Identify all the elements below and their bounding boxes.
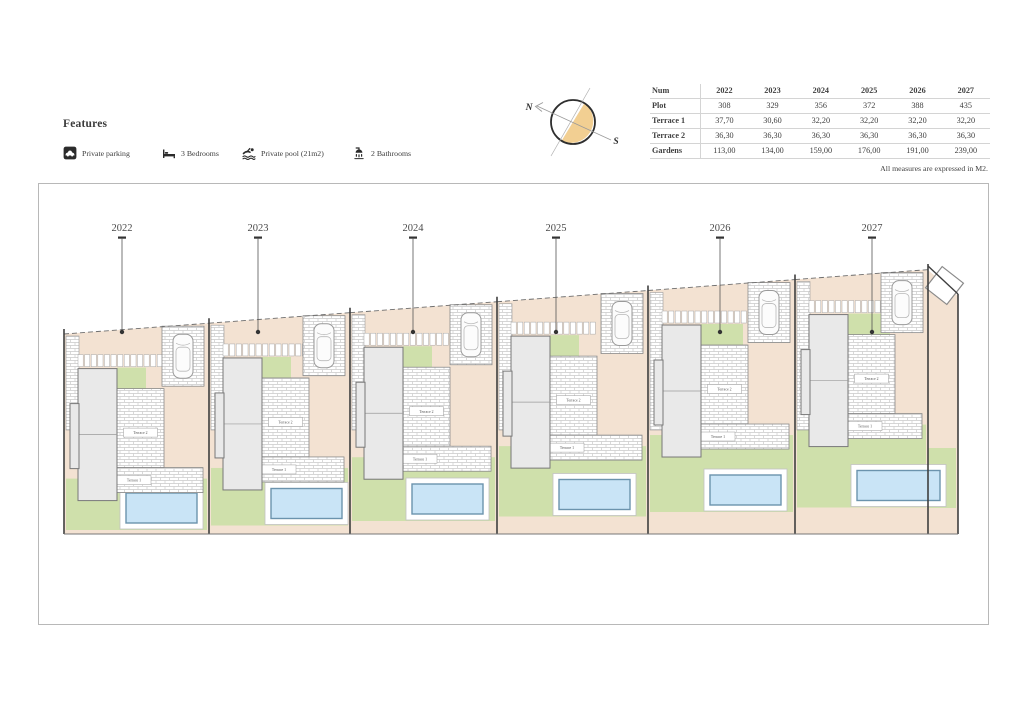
compass-south-label: S	[613, 137, 618, 147]
car-icon	[759, 291, 779, 335]
paver	[417, 333, 422, 345]
building-wing	[801, 350, 810, 415]
table-cell: 36,30	[845, 129, 893, 144]
paver	[564, 322, 569, 334]
terrace-label: Terrace 2	[717, 388, 731, 392]
terrace-label: Terrace 2	[133, 431, 147, 435]
paver	[430, 333, 435, 345]
paver	[728, 311, 733, 323]
pool	[559, 480, 630, 510]
table-row-label: Gardens	[650, 144, 700, 159]
leader-dot	[718, 330, 722, 334]
table-header-cell: Num	[650, 84, 700, 99]
paver	[584, 322, 589, 334]
paver	[384, 333, 389, 345]
paver	[423, 333, 428, 345]
table-row: Terrace 236,3036,3036,3036,3036,3036,30	[650, 129, 990, 144]
paver	[518, 322, 523, 334]
table-cell: 159,00	[797, 144, 845, 159]
paver	[875, 301, 880, 313]
paver	[397, 333, 402, 345]
paver	[855, 301, 860, 313]
paver	[118, 355, 123, 367]
plot-2024: Terrace 2Terrace 12024	[350, 223, 497, 534]
building-wing	[215, 393, 224, 458]
table-header-cell: 2024	[797, 84, 845, 99]
paver	[282, 344, 287, 356]
paver	[124, 355, 129, 367]
paver	[364, 333, 369, 345]
table-header-cell: 2025	[845, 84, 893, 99]
paver	[263, 344, 268, 356]
paver	[544, 322, 549, 334]
paver	[524, 322, 529, 334]
paver	[404, 333, 409, 345]
plot-number-label: 2022	[112, 223, 133, 234]
paver	[443, 333, 448, 345]
paver	[682, 311, 687, 323]
paver	[822, 301, 827, 313]
paver	[715, 311, 720, 323]
table-row-label: Terrace 2	[650, 129, 700, 144]
measures-table: Num202220232024202520262027 Plot30832935…	[650, 84, 990, 159]
paver	[849, 301, 854, 313]
compass: N S	[525, 88, 619, 156]
pool	[412, 484, 483, 514]
table-cell: 356	[797, 99, 845, 114]
paver	[223, 344, 228, 356]
plot-number-label: 2023	[248, 223, 269, 234]
terrace-label: Terrace 1	[127, 479, 141, 483]
legend-label: Private pool (21m2)	[261, 149, 324, 158]
leader-dot	[411, 330, 415, 334]
paver	[289, 344, 294, 356]
legend-label: 3 Bedrooms	[181, 149, 219, 158]
car-icon	[461, 313, 481, 357]
paver	[98, 355, 103, 367]
terrace-label: Terrace 2	[419, 410, 433, 414]
paver	[104, 355, 109, 367]
paver	[868, 301, 873, 313]
terrace-label: Terrace 2	[864, 377, 878, 381]
table-header-cell: 2023	[748, 84, 796, 99]
table-cell: 36,30	[748, 129, 796, 144]
paver	[688, 311, 693, 323]
paver	[377, 333, 382, 345]
table-cell: 134,00	[748, 144, 796, 159]
paver	[269, 344, 274, 356]
garden-patch	[403, 346, 432, 369]
plots-layer: Terrace 2Terrace 12022Terrace 2Terrace 1…	[64, 223, 958, 534]
paver	[144, 355, 149, 367]
paver	[531, 322, 536, 334]
table-header-cell: 2027	[942, 84, 990, 99]
leader-dot	[870, 330, 874, 334]
table-header-row: Num202220232024202520262027	[650, 84, 990, 99]
building-wing	[356, 382, 365, 447]
table-cell: 36,30	[797, 129, 845, 144]
table-cell: 388	[893, 99, 941, 114]
table-cell: 32,20	[942, 114, 990, 129]
paver	[695, 311, 700, 323]
paver	[249, 344, 254, 356]
paver	[862, 301, 867, 313]
table-row: Gardens113,00134,00159,00176,00191,00239…	[650, 144, 990, 159]
terrace-label: Terrace 1	[858, 425, 872, 429]
table-cell: 372	[845, 99, 893, 114]
table-cell: 113,00	[700, 144, 748, 159]
parking-icon	[63, 146, 77, 160]
paver	[537, 322, 542, 334]
table-row-label: Plot	[650, 99, 700, 114]
plot-2026: Terrace 2Terrace 12026	[648, 223, 795, 534]
paver	[437, 333, 442, 345]
paver	[675, 311, 680, 323]
building-wing	[503, 371, 512, 436]
table-cell: 30,60	[748, 114, 796, 129]
paver	[243, 344, 248, 356]
paver	[151, 355, 156, 367]
paver	[371, 333, 376, 345]
plot-number-label: 2027	[862, 223, 883, 234]
paver	[276, 344, 281, 356]
paver	[721, 311, 726, 323]
paver	[662, 311, 667, 323]
pool	[126, 493, 197, 523]
table-cell: 36,30	[942, 129, 990, 144]
building-wing	[70, 404, 79, 469]
table-cell: 36,30	[893, 129, 941, 144]
paver	[85, 355, 90, 367]
legend-item-bedrooms: 3 Bedrooms	[162, 146, 219, 160]
car-icon	[892, 281, 912, 325]
building-wing	[654, 360, 663, 425]
paver	[296, 344, 301, 356]
pool-icon	[242, 146, 256, 160]
compass-north-label: N	[525, 103, 534, 113]
paver	[741, 311, 746, 323]
bed-icon	[162, 146, 176, 160]
car-icon	[612, 301, 632, 345]
table-row-label: Terrace 1	[650, 114, 700, 129]
paver	[137, 355, 142, 367]
table-row: Terrace 137,7030,6032,2032,2032,2032,20	[650, 114, 990, 129]
terrace-label: Terrace 2	[566, 399, 580, 403]
table-header-cell: 2026	[893, 84, 941, 99]
terrace-label: Terrace 1	[272, 468, 286, 472]
garden-patch	[262, 357, 291, 380]
leader-dot	[120, 330, 124, 334]
terrace-label: Terrace 1	[560, 446, 574, 450]
garden-patch	[117, 368, 146, 391]
plot-2025: Terrace 2Terrace 12025	[497, 223, 648, 534]
paver	[230, 344, 235, 356]
plot-number-label: 2026	[710, 223, 731, 234]
legend-label: Private parking	[82, 149, 130, 158]
table-cell: 36,30	[700, 129, 748, 144]
garden-patch	[701, 324, 743, 347]
paver	[829, 301, 834, 313]
car-icon	[314, 324, 334, 368]
paver	[131, 355, 136, 367]
table-cell: 32,20	[893, 114, 941, 129]
bathroom-icon	[352, 146, 366, 160]
paver	[835, 301, 840, 313]
legend-label: 2 Bathrooms	[371, 149, 411, 158]
terrace-label: Terrace 2	[278, 421, 292, 425]
terrace-label: Terrace 1	[711, 435, 725, 439]
paver	[708, 311, 713, 323]
paver	[570, 322, 575, 334]
paver	[511, 322, 516, 334]
paver	[702, 311, 707, 323]
plot-number-label: 2025	[546, 223, 567, 234]
pool	[271, 489, 342, 519]
car-icon	[173, 334, 193, 378]
measures-note: All measures are expressed in M2.	[880, 164, 988, 173]
paver	[111, 355, 116, 367]
table-cell: 329	[748, 99, 796, 114]
plot-2023: Terrace 2Terrace 12023	[209, 223, 350, 534]
table-cell: 37,70	[700, 114, 748, 129]
table-cell: 191,00	[893, 144, 941, 159]
paver	[390, 333, 395, 345]
paver	[816, 301, 821, 313]
features-heading: Features	[63, 118, 107, 130]
paver	[842, 301, 847, 313]
table-row: Plot308329356372388435	[650, 99, 990, 114]
garden-patch	[550, 335, 579, 358]
pool	[710, 475, 781, 505]
plot-2027: Terrace 2Terrace 12027	[795, 223, 958, 534]
legend-item-bathrooms: 2 Bathrooms	[352, 146, 411, 160]
paver	[590, 322, 595, 334]
table-cell: 32,20	[845, 114, 893, 129]
paver	[91, 355, 96, 367]
terrace-label: Terrace 1	[413, 457, 427, 461]
table-cell: 32,20	[797, 114, 845, 129]
paver	[577, 322, 582, 334]
table-cell: 435	[942, 99, 990, 114]
paver	[236, 344, 241, 356]
paver	[669, 311, 674, 323]
table-cell: 308	[700, 99, 748, 114]
paver	[410, 333, 415, 345]
table-header-cell: 2022	[700, 84, 748, 99]
paver	[256, 344, 261, 356]
plot-2022: Terrace 2Terrace 12022	[64, 223, 209, 534]
legend-item-parking: Private parking	[63, 146, 130, 160]
paver	[809, 301, 814, 313]
leader-dot	[554, 330, 558, 334]
legend-item-pool: Private pool (21m2)	[242, 146, 324, 160]
paver	[735, 311, 740, 323]
plot-number-label: 2024	[403, 223, 425, 234]
table-cell: 239,00	[942, 144, 990, 159]
paver	[78, 355, 83, 367]
table-cell: 176,00	[845, 144, 893, 159]
leader-dot	[256, 330, 260, 334]
